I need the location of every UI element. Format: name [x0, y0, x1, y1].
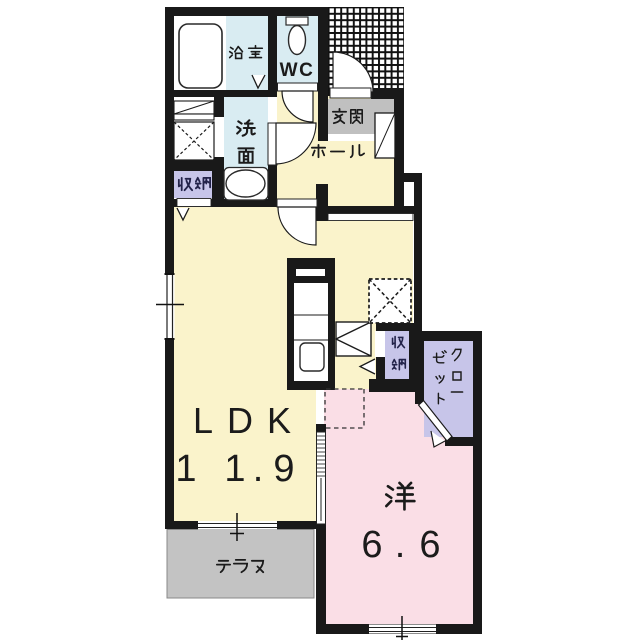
svg-text:6.6: 6.6	[361, 524, 440, 566]
svg-text:WC: WC	[280, 60, 315, 81]
svg-text:11.9: 11.9	[175, 448, 294, 490]
svg-text:LDK: LDK	[193, 400, 291, 441]
